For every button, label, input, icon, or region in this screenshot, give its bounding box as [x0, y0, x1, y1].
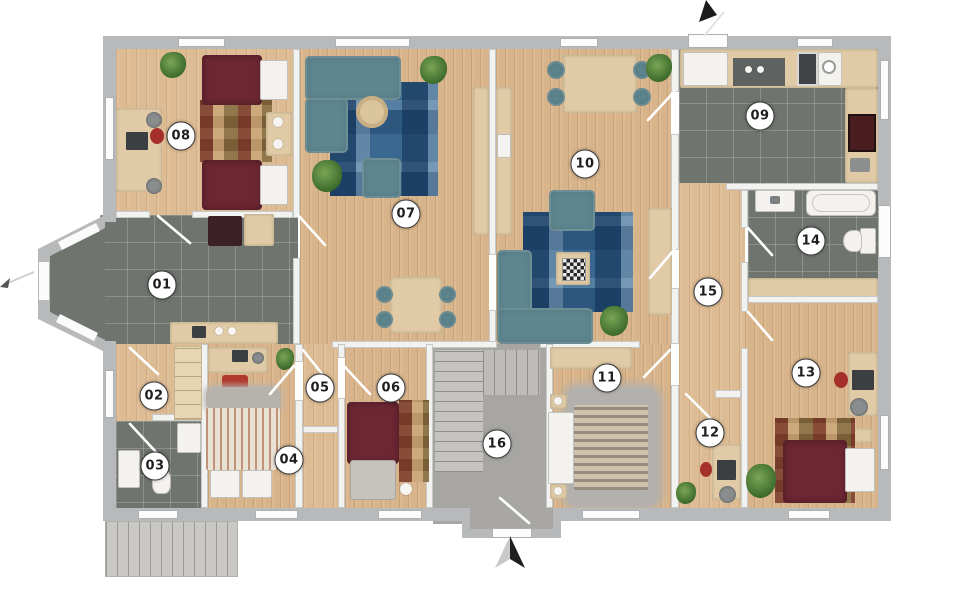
room-badge-09: 09 [746, 102, 775, 131]
stairs-winder [483, 350, 540, 395]
entrance-line [704, 12, 724, 36]
lamp [273, 117, 283, 127]
bed [202, 55, 262, 105]
wall [715, 390, 741, 398]
window [105, 97, 114, 160]
wall [295, 344, 303, 362]
appliance [850, 158, 870, 172]
north-arrow-icon [495, 536, 510, 568]
wall [726, 183, 878, 190]
entry-door [688, 34, 728, 48]
wall [671, 288, 679, 344]
room-badge-16: 16 [483, 430, 512, 459]
counter [496, 87, 512, 235]
chair [633, 88, 651, 106]
wardrobe [550, 347, 632, 369]
window [378, 510, 422, 519]
burner [745, 66, 752, 73]
bathtub-inner [812, 194, 870, 212]
chair [439, 286, 456, 303]
toilet-tank [860, 228, 876, 254]
lamp [554, 397, 562, 405]
bay-floor [50, 226, 105, 342]
window [880, 415, 889, 470]
bed [202, 160, 262, 210]
bed [783, 440, 847, 503]
window [255, 510, 298, 519]
oven [797, 52, 818, 86]
entry-door [492, 528, 532, 538]
entrance-arrow-icon [699, 0, 717, 22]
chair [376, 286, 393, 303]
burner [757, 66, 764, 73]
armchair [549, 190, 595, 231]
counter [473, 87, 489, 235]
window [138, 510, 178, 519]
sofa [305, 98, 348, 153]
window [880, 60, 889, 120]
porch-floor [470, 508, 553, 530]
lamp [273, 139, 283, 149]
sink-basin [215, 327, 223, 335]
lamp [400, 483, 412, 495]
fridge [848, 114, 876, 152]
wall [303, 426, 338, 433]
stairs [435, 350, 483, 472]
room-badge-12: 12 [696, 419, 725, 448]
room-badge-08: 08 [167, 122, 196, 151]
chair [850, 398, 868, 416]
wall [293, 49, 300, 218]
dining-table [563, 55, 637, 113]
room-badge-15: 15 [694, 278, 723, 307]
wall [489, 310, 496, 344]
room-badge-11: 11 [593, 364, 622, 393]
window [105, 370, 114, 418]
monitor [126, 132, 148, 150]
entry-arrow-line [8, 272, 34, 283]
wall [671, 49, 679, 92]
room-badge-13: 13 [792, 359, 821, 388]
kitchen-cabinet [683, 52, 728, 86]
counter-item [192, 326, 206, 338]
wardrobe [648, 208, 672, 315]
window [178, 38, 225, 47]
wall [338, 344, 345, 358]
window [797, 38, 833, 47]
rug [200, 100, 272, 162]
wall [293, 258, 300, 344]
chair [376, 311, 393, 328]
flowers [834, 372, 848, 388]
bed-pillow [242, 470, 272, 498]
room-badge-06: 06 [377, 374, 406, 403]
wall [489, 49, 496, 255]
room-badge-07: 07 [392, 200, 421, 229]
wardrobe [174, 346, 202, 420]
room-badge-02: 02 [140, 382, 169, 411]
dresser [208, 216, 242, 246]
chair [547, 61, 565, 79]
bay-wall [38, 215, 105, 352]
desk-item [232, 350, 248, 362]
bed [347, 402, 399, 464]
sink-basin [228, 327, 236, 335]
monitor [852, 370, 874, 390]
basin [770, 196, 780, 204]
bed-foot [350, 460, 396, 500]
north-arrow-icon [510, 536, 525, 568]
sink [497, 134, 511, 158]
bed-pillow [260, 60, 288, 100]
chair [146, 178, 162, 194]
bay-window [58, 318, 96, 337]
chair [547, 88, 565, 106]
bed-pillow [548, 412, 574, 484]
chair [146, 112, 162, 128]
counter [170, 322, 278, 344]
flowers [150, 128, 164, 144]
nightstand [852, 428, 872, 443]
balcony-door [878, 205, 891, 258]
monitor [717, 460, 736, 480]
armchair [362, 158, 401, 198]
sink-basin [822, 60, 836, 74]
dining-table [390, 277, 442, 333]
window [582, 510, 640, 519]
bed-pillow [210, 470, 240, 498]
bay-window [60, 227, 98, 246]
bed [574, 405, 648, 490]
window [560, 38, 598, 47]
room-badge-10: 10 [571, 150, 600, 179]
toilet [843, 230, 862, 252]
cabinet [244, 214, 274, 246]
exterior-wall [103, 341, 116, 521]
chair [439, 311, 456, 328]
entry-arrow-head-icon [0, 278, 10, 288]
sofa [497, 308, 593, 344]
chess-board [562, 258, 586, 281]
room-badge-01: 01 [148, 271, 177, 300]
wall [741, 190, 748, 228]
wall [338, 398, 345, 508]
wall [741, 262, 748, 312]
outdoor-stairs [105, 521, 238, 577]
wall [671, 134, 679, 250]
bed [206, 408, 280, 470]
side-table [356, 96, 388, 128]
bed-pillow [845, 448, 875, 492]
bed-pillow [260, 165, 288, 205]
floor-plan: 01 02 03 04 05 06 07 08 09 10 11 12 13 1… [0, 0, 960, 594]
room-badge-03: 03 [141, 452, 170, 481]
chair [252, 352, 264, 364]
wall [748, 296, 878, 303]
wall [332, 341, 497, 348]
washbasin [118, 450, 140, 488]
room-badge-05: 05 [306, 374, 335, 403]
shower [177, 423, 201, 453]
flowers [700, 462, 712, 477]
wall [116, 211, 150, 218]
room-badge-14: 14 [797, 227, 826, 256]
window [335, 38, 410, 47]
sofa [305, 56, 401, 100]
room-badge-04: 04 [275, 446, 304, 475]
window [788, 510, 830, 519]
chair [719, 486, 736, 503]
lamp [554, 487, 562, 495]
rug [399, 400, 429, 482]
